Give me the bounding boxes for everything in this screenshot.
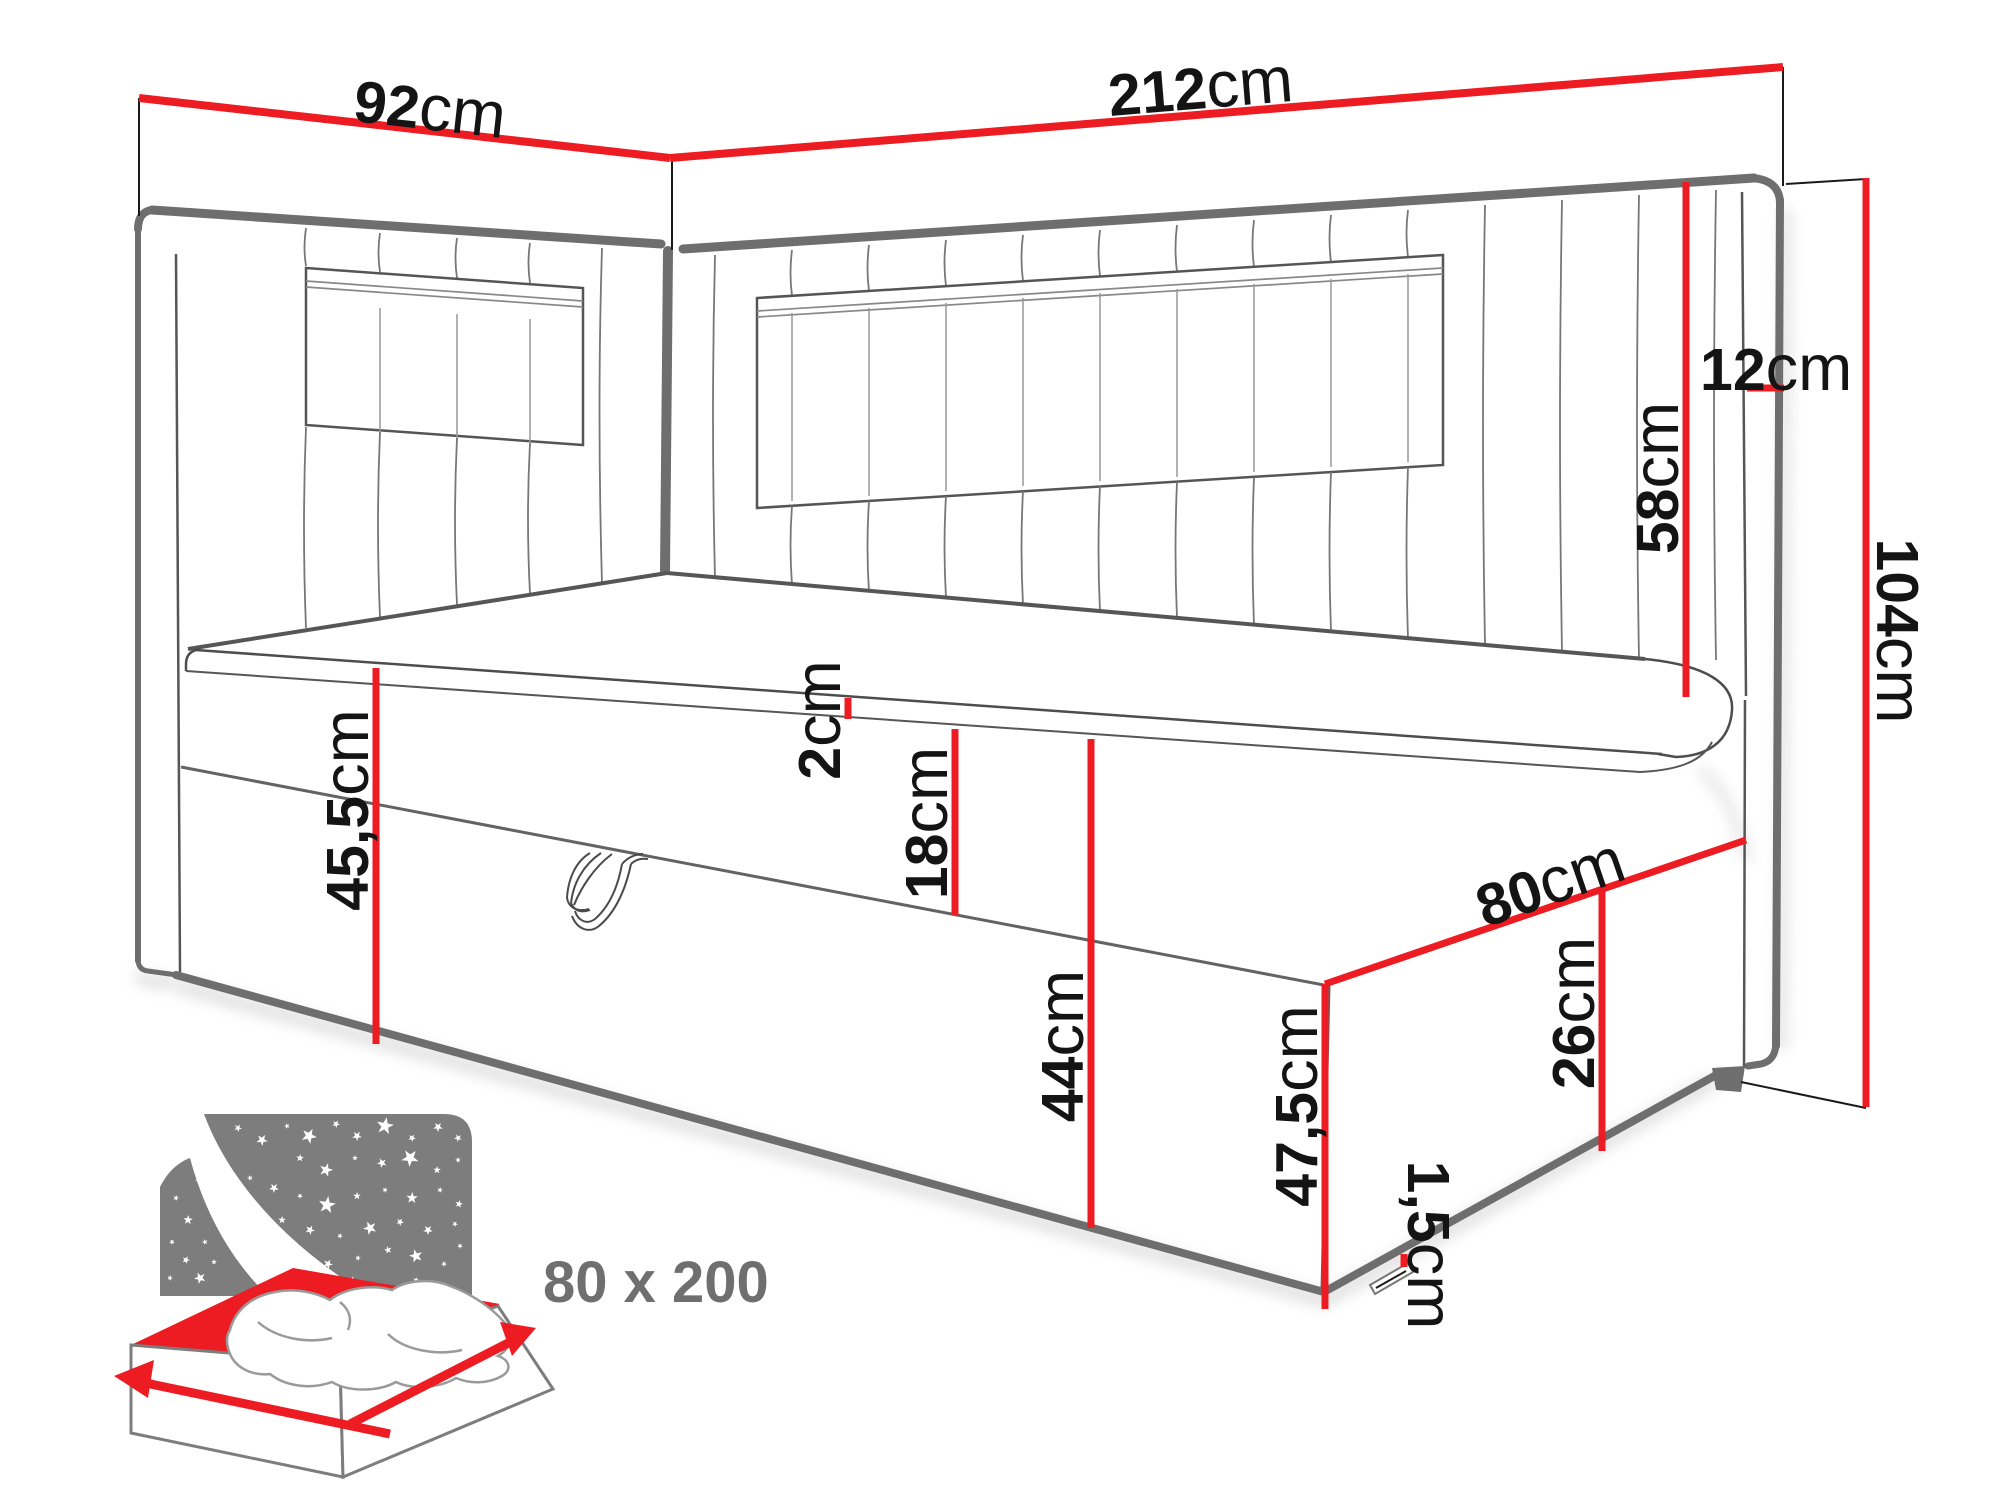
svg-text:26cm: 26cm: [1535, 937, 1608, 1089]
svg-text:12cm: 12cm: [1700, 331, 1852, 404]
svg-text:44cm: 44cm: [1024, 970, 1097, 1122]
svg-text:1,5cm: 1,5cm: [1394, 1161, 1467, 1330]
svg-text:104cm: 104cm: [1863, 538, 1936, 723]
svg-text:47,5cm: 47,5cm: [1258, 1005, 1331, 1207]
svg-text:18cm: 18cm: [888, 747, 961, 899]
svg-text:58cm: 58cm: [1619, 402, 1692, 554]
svg-text:45,5cm: 45,5cm: [309, 709, 382, 911]
svg-text:80 x 200: 80 x 200: [543, 1250, 769, 1315]
svg-text:2cm: 2cm: [781, 660, 854, 779]
